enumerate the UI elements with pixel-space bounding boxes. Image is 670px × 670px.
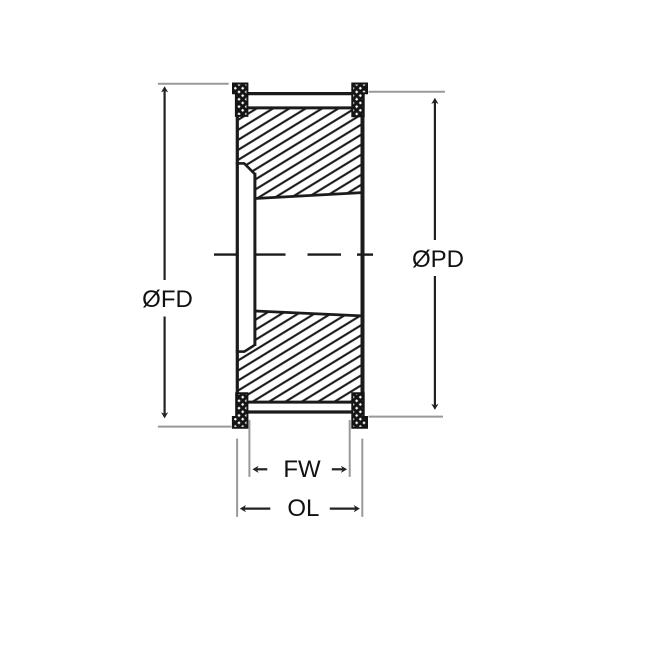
svg-text:ØFD: ØFD <box>142 286 193 313</box>
svg-text:FW: FW <box>283 456 321 483</box>
svg-text:OL: OL <box>287 495 319 522</box>
svg-text:ØPD: ØPD <box>412 246 464 273</box>
